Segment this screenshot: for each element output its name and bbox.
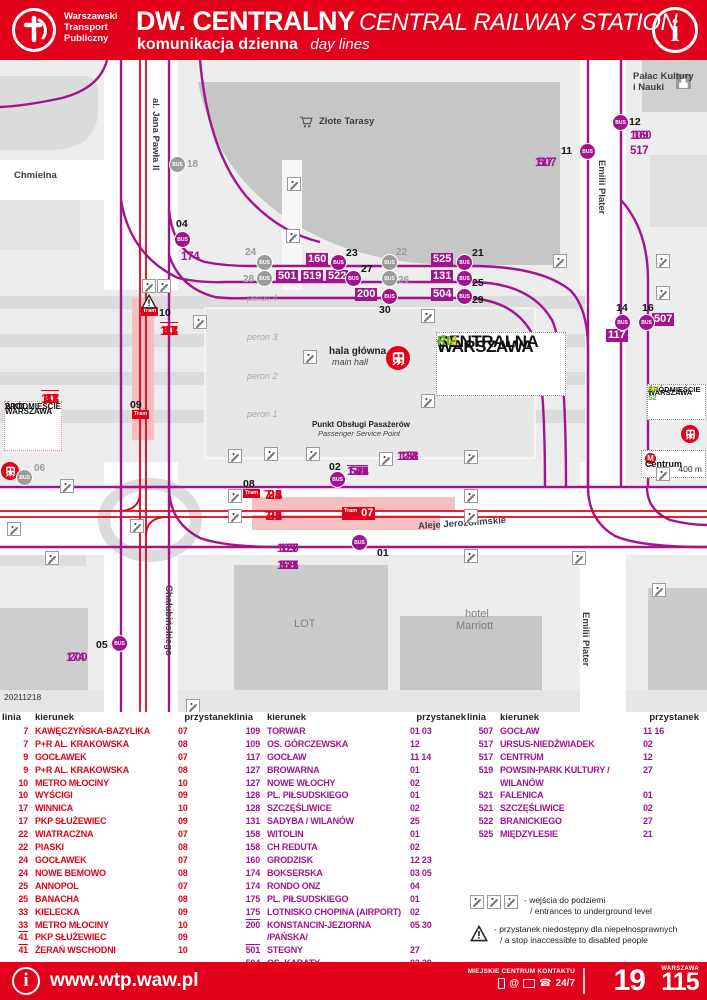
- line-number-box: 507: [652, 313, 674, 326]
- platform-label: peron 4: [247, 293, 278, 303]
- table-row: 7KAWĘCZYŃSKA-BAZYLIKA07: [2, 725, 238, 738]
- table-row: 521SZCZĘŚLIWICE02: [467, 802, 703, 815]
- table-row: 517URSUS-NIEDŹWIADEK02: [467, 738, 703, 751]
- stop-number: 21: [472, 247, 484, 259]
- street-label: i Nauki: [633, 82, 664, 93]
- legend-warn-en: / a stop inaccessible to disabled people: [494, 935, 677, 946]
- footer-info-icon: i: [12, 967, 40, 995]
- metro-centrum-box: M Centrum → 400 m: [641, 450, 706, 478]
- table-row: 25BANACHA08: [2, 893, 238, 906]
- table-row: 109OS. GÓRCZEWSKA12: [234, 738, 470, 751]
- table-header-row: liniakierunekprzystanek: [2, 712, 238, 725]
- stairs-icon: [228, 489, 242, 503]
- inactive-stop-number: 06: [34, 463, 45, 474]
- phone-115: WARSZAWA 115: [661, 966, 699, 992]
- stairs-icon: [45, 551, 59, 565]
- inactive-stop-number: 26: [398, 275, 409, 286]
- stairs-icon: [652, 583, 666, 597]
- info-icon: i: [652, 7, 698, 53]
- table-row: 24NOWE BEMOWO08: [2, 867, 238, 880]
- table-row: 158CH REDUTA02: [234, 841, 470, 854]
- bus-stop-icon: BUS: [381, 288, 398, 305]
- stop-number: 30: [379, 304, 391, 316]
- table-row: 160GRODZISK12 23: [234, 854, 470, 867]
- table-row: 10METRO MŁOCINY10: [2, 777, 238, 790]
- table-row: 174RONDO ONZ04: [234, 880, 470, 893]
- table-row: 7P+R AL. KRAKOWSKA08: [2, 738, 238, 751]
- table-row: 17WINNICA10: [2, 802, 238, 815]
- bus-stop-icon: BUS: [456, 288, 473, 305]
- stop-number: 23: [346, 247, 358, 259]
- line-number-box: 131: [431, 270, 453, 283]
- table-row: 17PKP SŁUŻEWIEC09: [2, 815, 238, 828]
- inactive-stop-number: 28: [243, 274, 254, 285]
- station-warszawa-centralna: WARSZAWA CENTRALNA KM RL: [436, 332, 566, 396]
- street-label: Emilii Plater: [580, 612, 591, 666]
- stairs-icon: [264, 447, 278, 461]
- table-row: 33METRO MŁOCINY10: [2, 919, 238, 932]
- platform-label: peron 1: [247, 409, 278, 419]
- stop-number: 05: [96, 639, 108, 651]
- stop-number: 14: [616, 302, 628, 314]
- stairs-icon: [142, 279, 156, 293]
- building-label: hotel: [465, 608, 489, 620]
- email-icon: @: [509, 978, 519, 989]
- warning-icon: [470, 925, 488, 942]
- table-row: 127NOWE WŁOCHY02: [234, 777, 470, 790]
- table-row: 507GOCŁAW11 16: [467, 725, 703, 738]
- escalator-icon: [487, 895, 501, 909]
- bus-stop-icon: BUS: [329, 471, 346, 488]
- legend-stairs-en: / entrances to underground level: [524, 906, 652, 917]
- transit-map-poster: WarszawskiTransportPubliczny DW. CENTRAL…: [0, 0, 707, 1000]
- stop-number: 25: [472, 277, 484, 289]
- table-row: 128SZCZĘŚLIWICE02: [234, 802, 470, 815]
- table-row: 200KONSTANCIN-JEZIORNA /PAŃSKA/05 30: [234, 919, 470, 945]
- stairs-icon: [572, 551, 586, 565]
- table-row: 128PL. PIŁSUDSKIEGO01: [234, 789, 470, 802]
- escalator-up-icon: [504, 895, 518, 909]
- stop-number: 04: [176, 218, 188, 230]
- table-row: 175LOTNISKO CHOPINA (AIRPORT)02: [234, 906, 470, 919]
- table-row: 175PL. PIŁSUDSKIEGO01: [234, 893, 470, 906]
- table-row: 127BROWARNA01: [234, 764, 470, 777]
- map-legend: - wejścia do podziemi / entrances to und…: [470, 895, 702, 953]
- tram-stop-icon: Tram: [243, 489, 260, 498]
- main-hall-label-pl: hala główna: [329, 346, 386, 357]
- bus-stop-icon: BUS: [169, 156, 186, 173]
- stop-number: 11: [561, 145, 572, 157]
- line-number-box: 200: [355, 288, 377, 301]
- street-label: Pałac Kultury: [633, 71, 694, 82]
- table-row: 158WITOLIN01: [234, 828, 470, 841]
- building-label: LOT: [294, 618, 315, 630]
- stairs-icon: [306, 447, 320, 461]
- footer-divider: [583, 968, 585, 994]
- street-label: Emilii Plater: [596, 160, 607, 214]
- table-column: liniakierunekprzystanek109TORWAR01 03109…: [234, 712, 470, 970]
- legend-stairs-pl: - wejścia do podziemi: [524, 895, 652, 906]
- warning-icon: [141, 294, 157, 314]
- main-hall-label-en: main hall: [332, 357, 368, 367]
- stairs-icon: [60, 479, 74, 493]
- bus-stop-icon: BUS: [456, 270, 473, 287]
- tram-badge: Tram: [342, 507, 359, 520]
- table-column: liniakierunekprzystanek7KAWĘCZYŃSKA-BAZY…: [2, 712, 238, 957]
- table-header-row: liniakierunekprzystanek: [234, 712, 470, 725]
- station-wkd: WARSZAWA ŚRÓDMIEŚCIE WKD: [4, 401, 62, 451]
- stairs-icon: [464, 450, 478, 464]
- stairs-icon: [379, 452, 393, 466]
- footer: i www.wtp.waw.pl MIEJSKIE CENTRUM KONTAK…: [0, 962, 707, 1000]
- monitor-icon: [523, 979, 535, 988]
- bus-stop-icon: BUS: [345, 270, 362, 287]
- table-row: 521FALENICA01: [467, 789, 703, 802]
- page-subtitle: komunikacja dzienna day lines: [137, 36, 370, 54]
- service-point-label-en: Passenger Service Point: [318, 429, 400, 438]
- phone-icon: ☎: [539, 978, 551, 989]
- stop-number: 27: [361, 263, 373, 275]
- table-row: 522BRANICKIEGO27: [467, 815, 703, 828]
- bus-stop-icon: BUS: [381, 270, 398, 287]
- stairs-icon: [303, 350, 317, 364]
- street-label: Chałubińskiego: [163, 585, 174, 656]
- stairs-icon: [157, 279, 171, 293]
- inactive-stop-number: 18: [187, 159, 198, 170]
- station-srodmiescie: WARSZAWA ŚRÓDMIEŚCIE S1 S2 KM: [647, 384, 706, 420]
- stairs-icon: [228, 449, 242, 463]
- table-row: 525MIĘDZYLESIE21: [467, 828, 703, 841]
- bus-stop-icon: BUS: [351, 534, 368, 551]
- tram-stop-icon: Tram: [132, 410, 149, 419]
- stairs-icon: [228, 509, 242, 523]
- table-row: 174BOKSERSKA03 05: [234, 867, 470, 880]
- stop-number: 12: [629, 116, 641, 128]
- line-number-box: 519: [301, 270, 323, 283]
- page-title: DW. CENTRALNY CENTRAL RAILWAY STATION: [136, 6, 677, 37]
- table-row: 131SADYBA / WILANÓW25: [234, 815, 470, 828]
- line-number-box: 525: [431, 253, 453, 266]
- table-column: liniakierunekprzystanek507GOCŁAW11 16517…: [467, 712, 703, 841]
- train-icon-main-hall: [386, 346, 410, 370]
- bus-stop-icon: BUS: [330, 254, 347, 271]
- legend-warn-pl: - przystanek niedostępny dla niepełnospr…: [494, 924, 677, 935]
- map-canvas: WARSZAWA CENTRALNA KM RL WARSZAWA ŚRÓDMI…: [0, 60, 707, 712]
- table-row: 41ŻERAŃ WSCHODNI10: [2, 944, 238, 957]
- table-row: 117GOCŁAW11 14: [234, 751, 470, 764]
- stairs-icon: [7, 522, 21, 536]
- map-geometry: [0, 60, 707, 712]
- table-row: 25ANNOPOL07: [2, 880, 238, 893]
- mobile-icon: [498, 978, 505, 989]
- stairs-icon: [656, 467, 670, 481]
- line-number-box: 504: [431, 288, 453, 301]
- contact-center-label: MIEJSKIE CENTRUM KONTAKTU: [468, 968, 575, 975]
- building-label: Marriott: [456, 620, 493, 632]
- stairs-icon: [656, 286, 670, 300]
- bus-stop-icon: BUS: [111, 635, 128, 652]
- footer-url[interactable]: www.wtp.waw.pl: [50, 970, 198, 992]
- stairs-icon: [464, 489, 478, 503]
- inactive-stop-number: 22: [396, 247, 407, 258]
- line-number-box: 501: [276, 270, 298, 283]
- train-icon-srodmiescie: [681, 425, 699, 443]
- stop-number-07: 07: [359, 507, 375, 520]
- bus-stop-icon: BUS: [614, 314, 631, 331]
- stairs-icon: [186, 699, 200, 712]
- table-row: 501STEGNY27: [234, 944, 470, 957]
- platform-label: peron 3: [247, 332, 278, 342]
- map-date-code: 20211218: [4, 692, 41, 702]
- stairs-icon: [130, 519, 144, 533]
- bus-stop-icon: BUS: [174, 231, 191, 248]
- line-number-box: 160: [306, 253, 328, 266]
- table-row: 109TORWAR01 03: [234, 725, 470, 738]
- table-row: 24GOCŁAWEK07: [2, 854, 238, 867]
- bus-stop-icon: BUS: [16, 469, 33, 486]
- table-header-row: liniakierunekprzystanek: [467, 712, 703, 725]
- stairs-icon: [656, 254, 670, 268]
- bus-stop-icon: BUS: [638, 314, 655, 331]
- stairs-icon: [553, 254, 567, 268]
- street-label: al. Jana Pawła II: [150, 98, 161, 170]
- stairs-icon: [286, 229, 300, 243]
- table-row: 33KIELECKA09: [2, 906, 238, 919]
- table-row: 10WYŚCIGI09: [2, 789, 238, 802]
- table-row: 22WIATRACZNA07: [2, 828, 238, 841]
- street-label: Chmielna: [14, 170, 57, 181]
- street-label: Złote Tarasy: [319, 116, 374, 127]
- table-row: 519POWSIN-PARK KULTURY / WILANÓW27: [467, 764, 703, 790]
- org-name: WarszawskiTransportPubliczny: [64, 11, 118, 44]
- bus-stop-icon: BUS: [256, 254, 273, 271]
- stop-number: 29: [472, 294, 484, 306]
- tram-stop-07: Tram 07: [342, 507, 375, 520]
- platform-label: peron 2: [247, 371, 278, 381]
- stop-number: 01: [377, 547, 389, 559]
- header: WarszawskiTransportPubliczny DW. CENTRAL…: [0, 0, 707, 60]
- bus-stop-icon: BUS: [579, 143, 596, 160]
- bus-stop-icon: BUS: [256, 270, 273, 287]
- table-row: 9GOCŁAWEK07: [2, 751, 238, 764]
- contact-center: MIEJSKIE CENTRUM KONTAKTU @ ☎ 24/7: [468, 968, 575, 989]
- table-row: 517CENTRUM12: [467, 751, 703, 764]
- service-point-label-pl: Punkt Obsługi Pasażerów: [312, 420, 410, 429]
- stairs-icon: [464, 509, 478, 523]
- table-row: 22PIASKI08: [2, 841, 238, 854]
- stairs-icon: [470, 895, 484, 909]
- inactive-stop-number: 24: [245, 247, 256, 258]
- bus-stop-icon: BUS: [612, 114, 629, 131]
- stairs-icon: [287, 177, 301, 191]
- stairs-icon: [421, 309, 435, 323]
- stairs-icon: [421, 394, 435, 408]
- stop-number: 10: [159, 307, 171, 319]
- bus-stop-icon: BUS: [381, 254, 398, 271]
- wtp-logo-icon: [11, 7, 57, 53]
- table-row: 9P+R AL. KRAKOWSKA08: [2, 764, 238, 777]
- phone-19: 19: [614, 964, 645, 998]
- bus-stop-icon: BUS: [456, 254, 473, 271]
- stairs-icon: [193, 315, 207, 329]
- hours-label: 24/7: [556, 978, 575, 989]
- stairs-icon: [464, 549, 478, 563]
- table-row: 41PKP SŁUŻEWIEC09: [2, 931, 238, 944]
- line-number-box: 117: [606, 329, 628, 342]
